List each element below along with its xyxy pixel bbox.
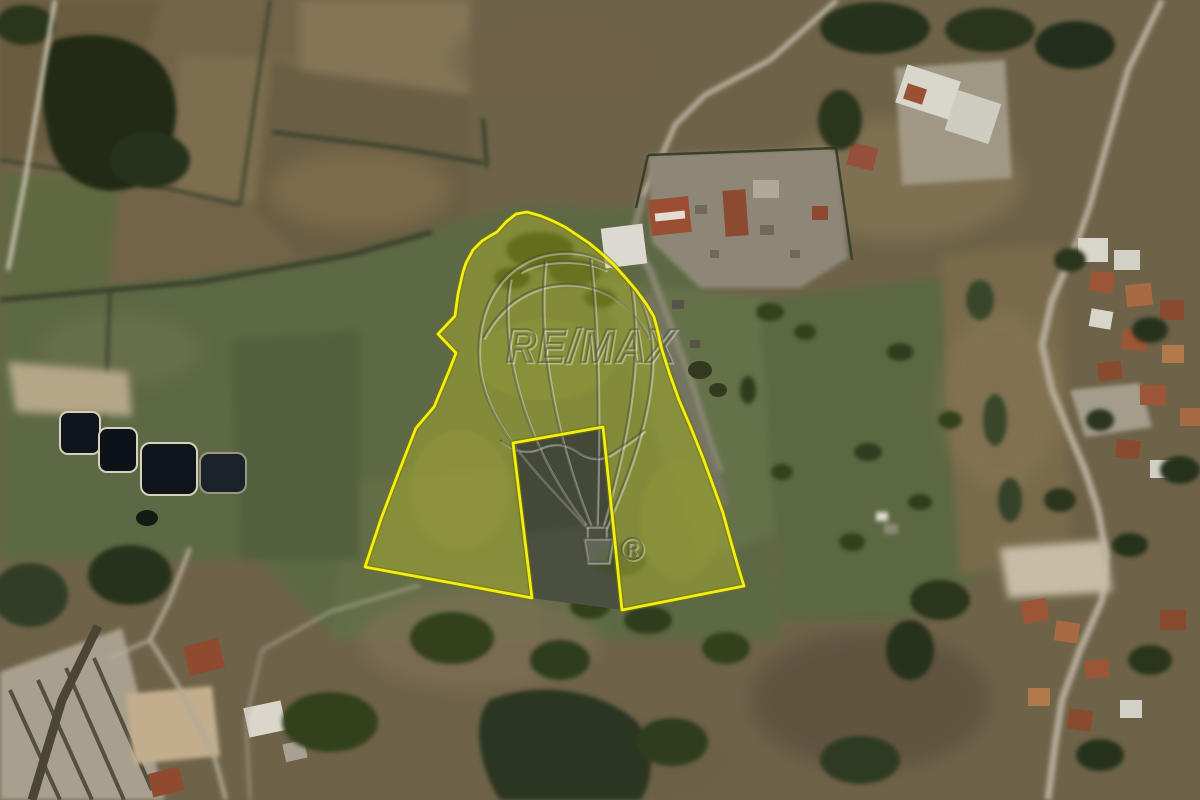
watermark-registered: ®: [620, 530, 644, 567]
watermark-brand: RE/MAX: [506, 319, 677, 372]
pond: [200, 453, 246, 493]
pond: [99, 428, 137, 472]
satellite-scene: RE/MAX ® RE/MAX ®: [0, 0, 1200, 800]
satellite-map: RE/MAX ® RE/MAX ®: [0, 0, 1200, 800]
sandy-lot: [126, 686, 220, 764]
pond: [60, 412, 100, 454]
pond: [141, 443, 197, 495]
